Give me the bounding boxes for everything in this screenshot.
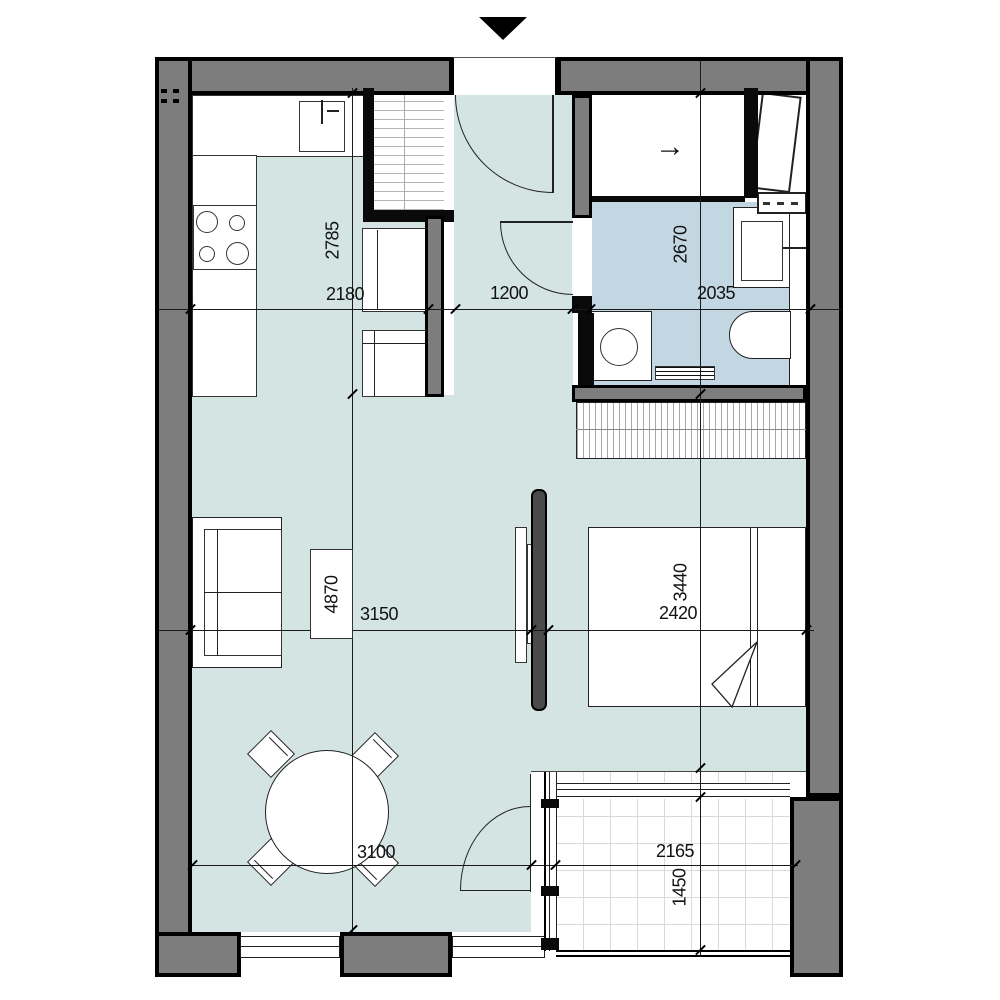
bathroom-door-leaf xyxy=(500,221,573,223)
wall-bottom-left xyxy=(155,932,241,977)
dim-kitchen-depth: 2785 xyxy=(324,209,343,273)
wall-closet-divider xyxy=(592,196,745,202)
wall-joint-mark xyxy=(161,89,167,93)
dim-dining-width: 3100 xyxy=(344,843,408,862)
entry-door-leaf xyxy=(552,95,554,193)
dim-line-h-middle xyxy=(158,630,814,631)
balcony-glazing-line xyxy=(549,771,550,951)
wall-top-left xyxy=(155,57,453,95)
wall-bathroom-west xyxy=(578,313,594,390)
dim-kitchen-width: 2180 xyxy=(313,285,377,304)
dim-bathroom-depth: 2670 xyxy=(672,213,691,277)
wall-bathroom-south xyxy=(572,385,806,402)
sofa-cushion-line xyxy=(204,592,282,593)
dim-bathroom-width: 2035 xyxy=(684,284,748,303)
entry-door-opening xyxy=(452,57,557,95)
wall-joint-mark xyxy=(161,99,167,103)
wall-hall-east-upper xyxy=(572,95,592,218)
dim-line-v-right xyxy=(700,60,701,957)
radiator xyxy=(655,366,715,380)
window-bottom-2 xyxy=(452,936,545,958)
cabinet-upper-line xyxy=(377,230,378,310)
wall-right-lower xyxy=(790,797,843,977)
floor-plan: → 2180 1200 2035 2 xyxy=(0,0,1000,1000)
balcony-railing xyxy=(556,950,790,957)
wall-bottom-mid xyxy=(340,932,452,977)
sliding-door-arrow-icon: → xyxy=(655,132,685,162)
balcony-glazing xyxy=(544,771,557,951)
cabinet-lower-hline xyxy=(363,343,427,344)
wall-joint-mark xyxy=(173,89,179,93)
balcony-door-sill xyxy=(460,890,531,891)
balcony-left-edge xyxy=(530,774,531,892)
wardrobe-mid-line xyxy=(576,429,806,430)
dim-hall-width: 1200 xyxy=(477,284,541,303)
corner-closet-threshold xyxy=(757,192,807,214)
wall-closet-vertical xyxy=(744,88,758,198)
burner-large-tl xyxy=(196,211,218,233)
balcony-window-line-2 xyxy=(557,789,790,790)
window-bottom-1 xyxy=(240,936,340,958)
burner-large-br xyxy=(226,242,249,265)
partition-wall xyxy=(531,489,547,711)
kitchen-faucet xyxy=(321,100,323,124)
bathroom-ledge xyxy=(789,198,806,390)
bathroom-sink-basin xyxy=(741,221,783,281)
kitchen-faucet-bar xyxy=(327,110,339,112)
washing-machine-drum xyxy=(600,328,638,366)
blanket-fold xyxy=(706,637,762,709)
dim-line-h-upper xyxy=(158,309,842,310)
dim-balcony-depth: 1450 xyxy=(671,856,690,920)
balcony-door-post-bottom xyxy=(541,886,559,896)
bathroom-faucet xyxy=(783,247,806,249)
cabinet-lower-vline xyxy=(374,331,375,396)
dim-bedroom-depth: 3440 xyxy=(672,551,691,615)
balcony-window-line-3 xyxy=(557,796,790,797)
dim-living-depth-box: 4870 xyxy=(310,549,353,639)
bathroom-door-threshold xyxy=(572,218,592,296)
dim-line-v-left xyxy=(352,88,353,932)
wall-right-upper xyxy=(806,57,843,797)
wall-left xyxy=(155,57,192,977)
burner-small-tr xyxy=(229,215,245,231)
service-shaft xyxy=(374,95,444,210)
toilet xyxy=(729,311,791,359)
kitchen-cabinet-lower xyxy=(362,330,428,397)
threshold-hatch xyxy=(763,202,801,205)
window-bottom-1-line xyxy=(240,946,340,947)
dim-living-depth: 4870 xyxy=(323,563,342,627)
wall-joint-mark xyxy=(173,99,179,103)
entry-arrow-icon xyxy=(479,17,527,40)
balcony-top-edge xyxy=(531,771,806,772)
dim-line-h-lower xyxy=(192,865,798,866)
burner-small-bl xyxy=(199,246,215,262)
tv-board xyxy=(515,527,527,663)
kitchen-counter-left xyxy=(192,155,257,397)
wall-shaft-left xyxy=(363,88,374,218)
shaft-center-line xyxy=(404,95,405,210)
wardrobe xyxy=(576,402,806,459)
window-bottom-2-line xyxy=(452,946,545,947)
dim-living-width: 3150 xyxy=(347,605,411,624)
balcony-window-line-1 xyxy=(557,783,790,784)
balcony-door-post-top xyxy=(541,799,559,808)
balcony-corner-post xyxy=(541,938,559,950)
